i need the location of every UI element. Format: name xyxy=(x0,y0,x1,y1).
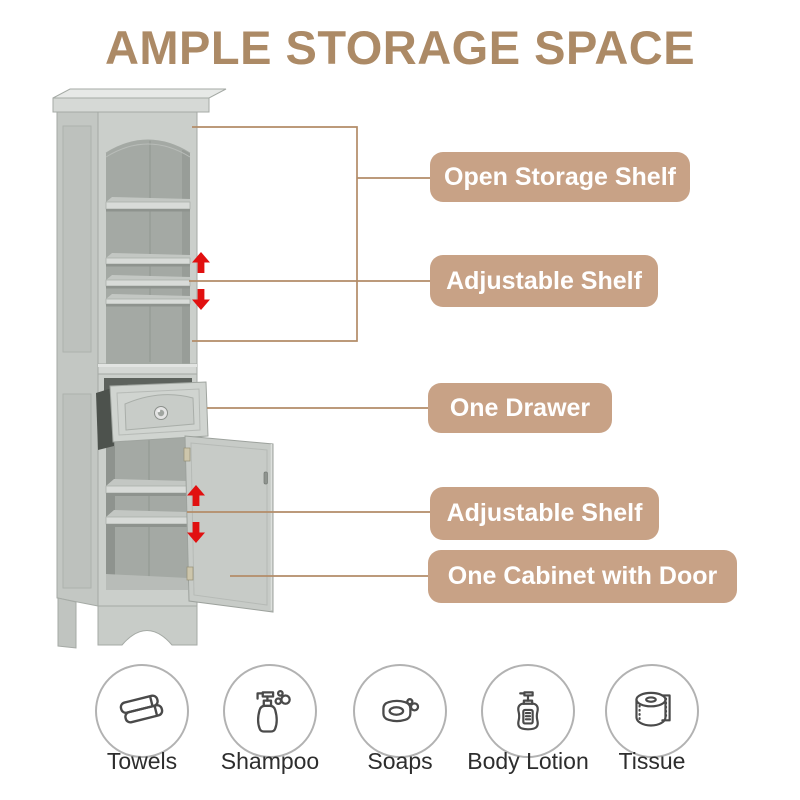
lotion-bottle-icon xyxy=(499,682,557,740)
callout-adjustable-shelf-bottom: Adjustable Shelf xyxy=(430,487,659,540)
door-hinge-top xyxy=(184,448,190,461)
soap-bar-icon xyxy=(371,682,429,740)
essential-circle-soaps xyxy=(353,664,447,758)
essential-circle-shampoo xyxy=(223,664,317,758)
essential-circle-towels xyxy=(95,664,189,758)
tissue-roll-icon xyxy=(623,682,681,740)
callout-one-drawer: One Drawer xyxy=(428,383,612,433)
towels-icon xyxy=(113,682,171,740)
open-shelf-bracket-line xyxy=(192,127,357,341)
shampoo-bottle-icon xyxy=(241,682,299,740)
essential-circle-tissue xyxy=(605,664,699,758)
essential-circle-body-lotion xyxy=(481,664,575,758)
callout-open-storage-shelf: Open Storage Shelf xyxy=(430,152,690,202)
ample-storage-infographic: AMPLE STORAGE SPACE xyxy=(0,0,800,800)
essential-label-tissue: Tissue xyxy=(567,748,737,775)
callout-one-cabinet-with-door: One Cabinet with Door xyxy=(428,550,737,603)
door-handle xyxy=(264,472,268,484)
callout-adjustable-shelf-top: Adjustable Shelf xyxy=(430,255,658,307)
door-hinge-bottom xyxy=(187,567,193,580)
cabinet-drawing xyxy=(53,89,273,648)
